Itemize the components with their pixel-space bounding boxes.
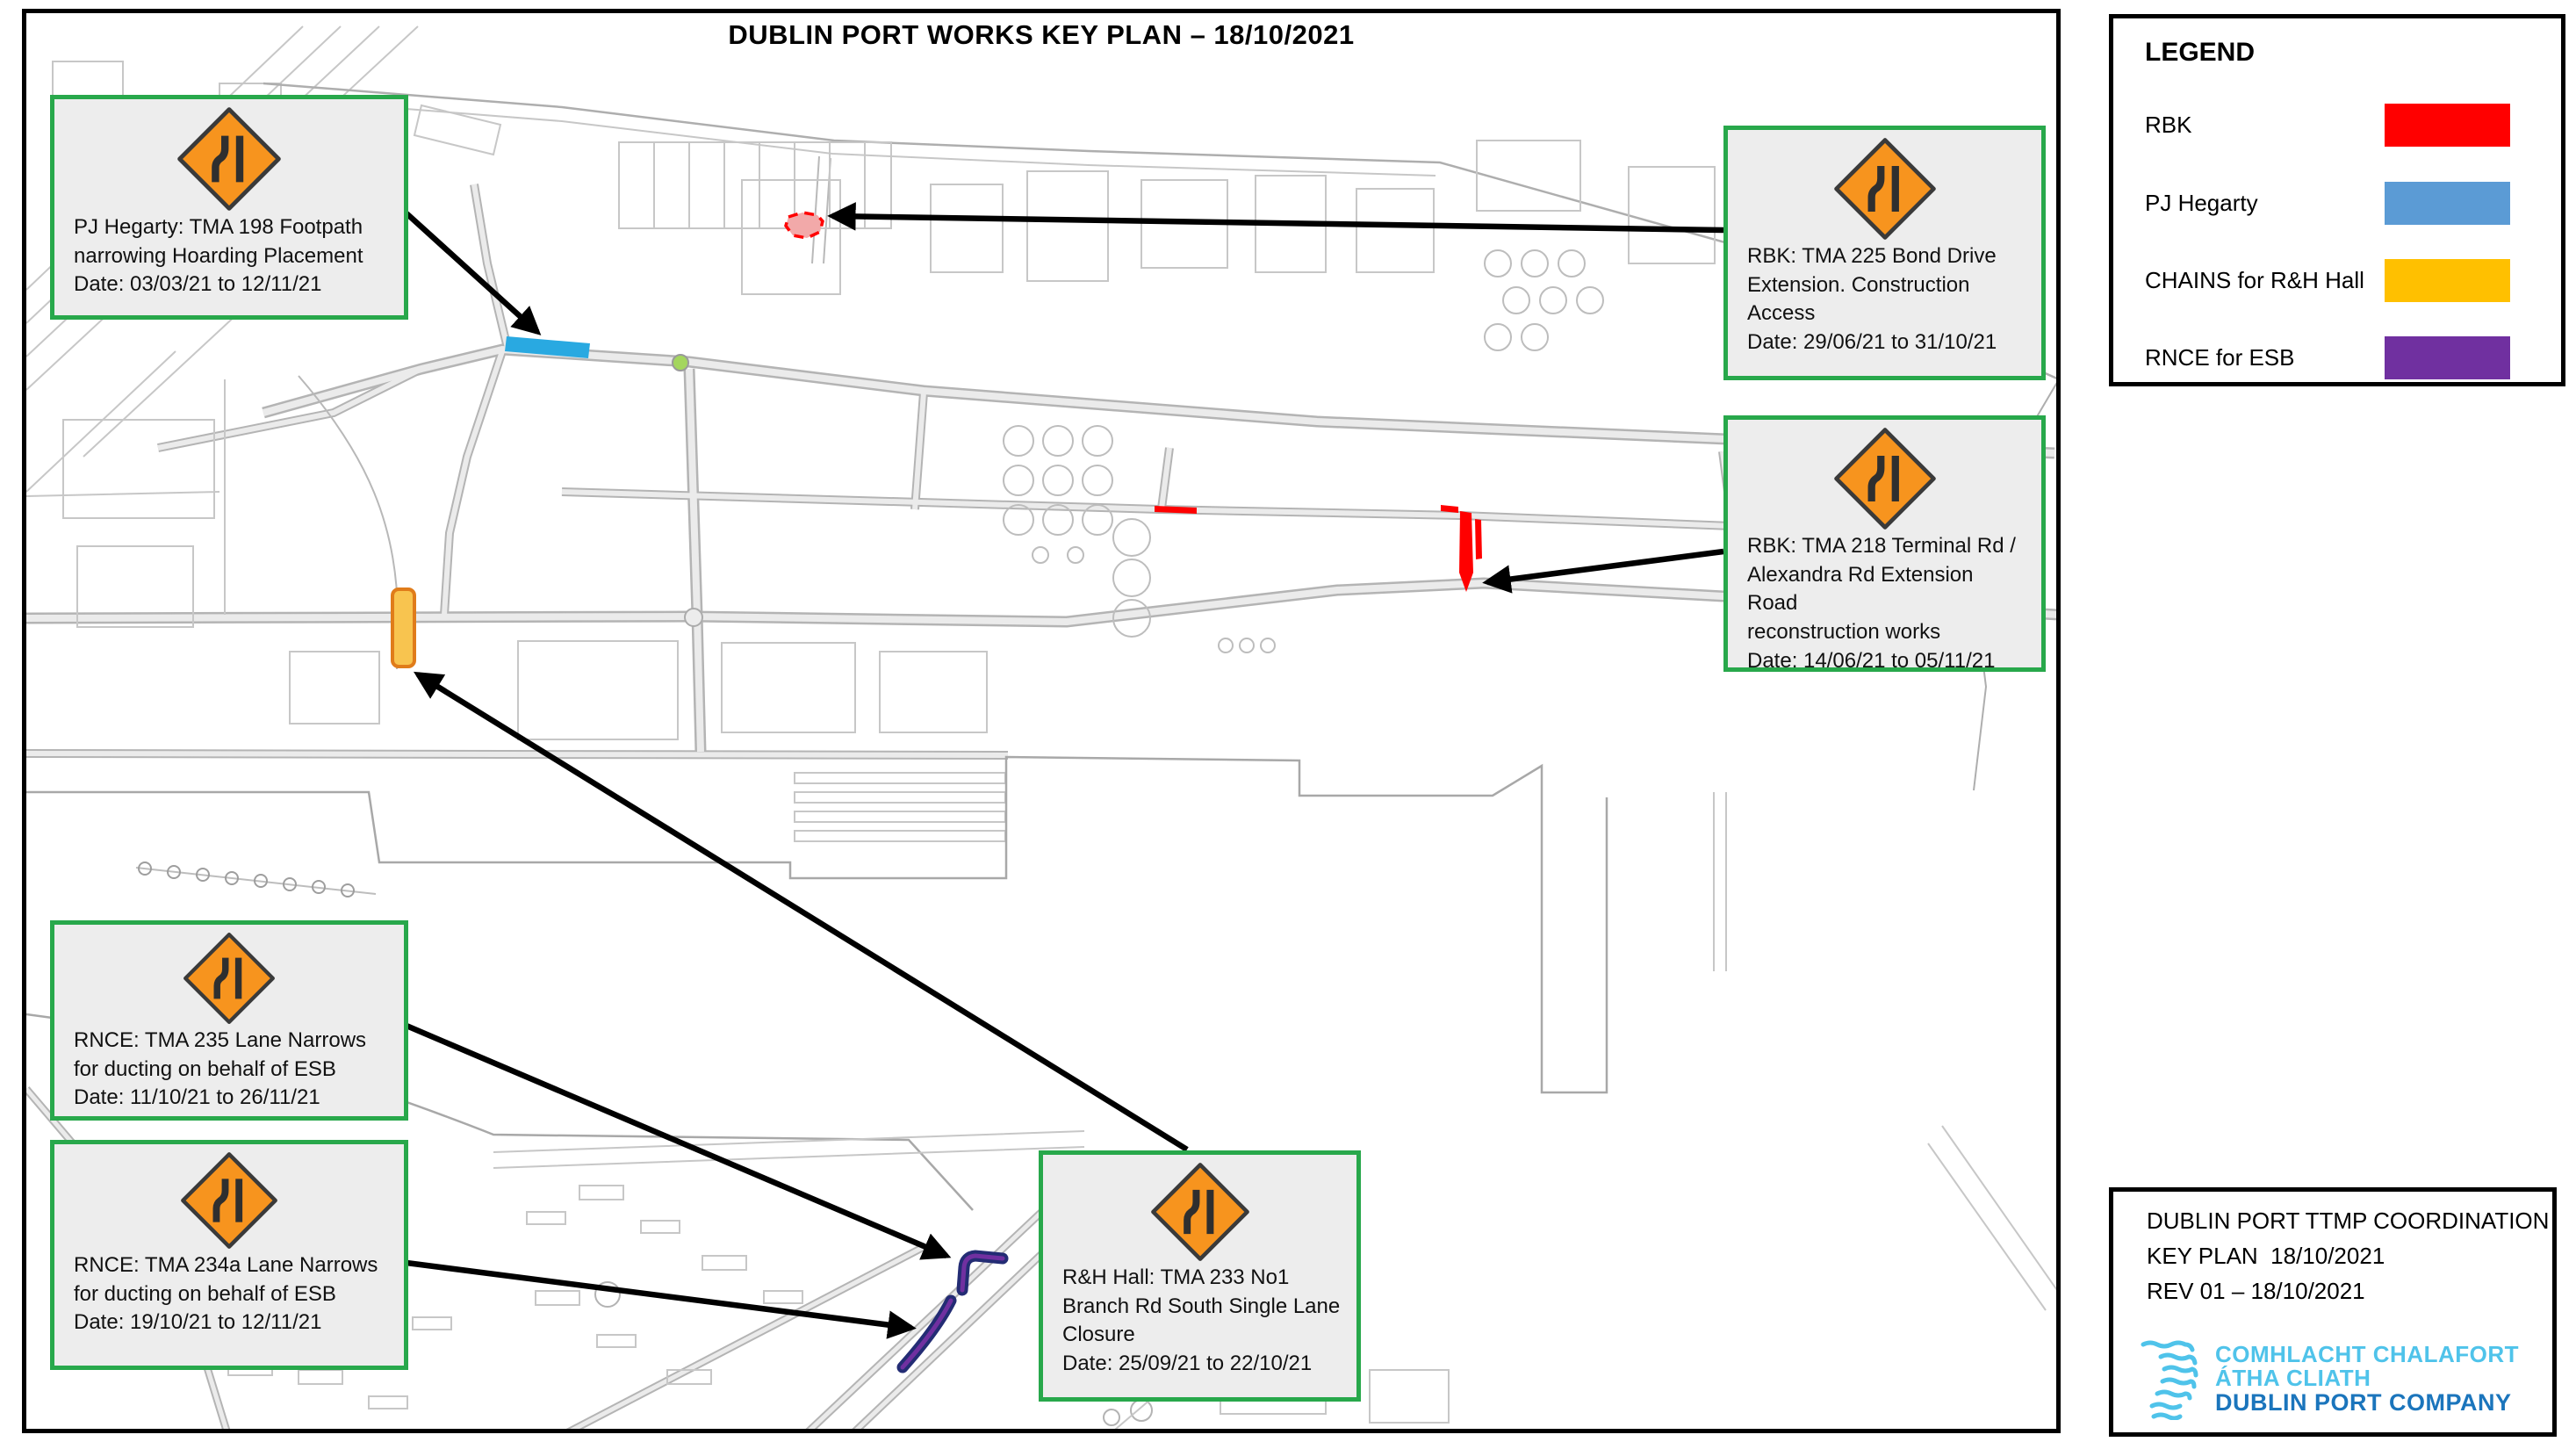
road-narrows-sign-icon [1833, 427, 1937, 530]
legend-row-rnce: RNCE for ESB [2145, 336, 2538, 379]
arrow-pj-hegarty-198 [407, 213, 537, 332]
callout-rbk-225: RBK: TMA 225 Bond Drive Extension. Const… [1723, 126, 2046, 380]
rbk-218-work-zone-marker-secondary [1475, 519, 1482, 559]
legend-swatch-chains [2385, 259, 2510, 302]
legend-heading: LEGEND [2145, 38, 2255, 68]
legend-label: CHAINS for R&H Hall [2145, 267, 2364, 294]
road-narrows-sign-icon [180, 1151, 278, 1250]
arrow-rbk-218 [1487, 551, 1723, 582]
road-narrows-sign-icon [183, 932, 276, 1025]
callout-line: Date: 14/06/21 to 05/11/21 [1747, 647, 2029, 676]
callout-text: R&H Hall: TMA 233 No1 Branch Rd South Si… [1043, 1262, 1356, 1388]
legend: LEGEND RBK PJ Hegarty CHAINS for R&H Hal… [2109, 14, 2565, 386]
legend-label: RNCE for ESB [2145, 344, 2295, 371]
rbk-225-work-zone-marker [786, 213, 823, 238]
callout-line: RBK: TMA 218 Terminal Rd / [1747, 532, 2029, 561]
callout-line: Extension. Construction [1747, 271, 2029, 300]
callout-rh-hall-233: R&H Hall: TMA 233 No1 Branch Rd South Si… [1039, 1150, 1361, 1402]
legend-swatch-pj-hegarty [2385, 182, 2510, 225]
roundabout-marker [673, 355, 688, 371]
page-title: DUBLIN PORT WORKS KEY PLAN – 18/10/2021 [22, 19, 2061, 51]
callout-text: RNCE: TMA 234a Lane Narrows for ducting … [54, 1250, 404, 1346]
callout-line: Access [1747, 299, 2029, 328]
callout-line: PJ Hegarty: TMA 198 Footpath [74, 213, 392, 242]
callout-line: Date: 03/03/21 to 12/11/21 [74, 270, 392, 299]
callout-rnce-235: RNCE: TMA 235 Lane Narrows for ducting o… [50, 920, 408, 1121]
callout-line: for ducting on behalf of ESB [74, 1280, 392, 1309]
callout-line: RNCE: TMA 234a Lane Narrows [74, 1251, 392, 1280]
callout-text: RNCE: TMA 235 Lane Narrows for ducting o… [54, 1025, 404, 1121]
callout-line: RBK: TMA 225 Bond Drive [1747, 242, 2029, 271]
callout-line: Closure [1062, 1321, 1344, 1350]
title-block-line-1: DUBLIN PORT TTMP COORDINATION [2147, 1207, 2549, 1235]
legend-row-chains: CHAINS for R&H Hall [2145, 259, 2538, 302]
callout-line: Date: 11/10/21 to 26/11/21 [74, 1084, 392, 1113]
callout-rnce-234a: RNCE: TMA 234a Lane Narrows for ducting … [50, 1140, 408, 1370]
callout-text: PJ Hegarty: TMA 198 Footpath narrowing H… [54, 212, 404, 308]
callout-line: RNCE: TMA 235 Lane Narrows [74, 1027, 392, 1056]
callout-line: for ducting on behalf of ESB [74, 1056, 392, 1085]
dpc-irish-name-line-1: COMHLACHT CHALAFORT [2215, 1343, 2519, 1366]
dublin-port-key-plan-page: DUBLIN PORT WORKS KEY PLAN – 18/10/2021 … [0, 0, 2576, 1449]
legend-label: RBK [2145, 112, 2191, 139]
legend-row-pj-hegarty: PJ Hegarty [2145, 182, 2538, 225]
legend-label: PJ Hegarty [2145, 190, 2258, 217]
callout-line: Date: 25/09/21 to 22/10/21 [1062, 1350, 1344, 1379]
arrow-rbk-225 [832, 216, 1723, 230]
legend-row-rbk: RBK [2145, 104, 2538, 147]
legend-swatch-rnce [2385, 336, 2510, 379]
callout-text: RBK: TMA 225 Bond Drive Extension. Const… [1728, 241, 2041, 366]
callout-line: Date: 29/06/21 to 31/10/21 [1747, 328, 2029, 357]
road-narrows-sign-icon [1833, 137, 1937, 241]
dpc-irish-name-line-2: ÁTHA CLIATH [2215, 1366, 2519, 1390]
title-block-line-2: KEY PLAN 18/10/2021 [2147, 1243, 2385, 1270]
callout-line: Branch Rd South Single Lane [1062, 1293, 1344, 1322]
callout-line: narrowing Hoarding Placement [74, 242, 392, 271]
callout-pj-hegarty-198: PJ Hegarty: TMA 198 Footpath narrowing H… [50, 95, 408, 320]
callout-line: R&H Hall: TMA 233 No1 [1062, 1264, 1344, 1293]
callout-line: Alexandra Rd Extension Road [1747, 561, 2029, 618]
callout-rbk-218: RBK: TMA 218 Terminal Rd / Alexandra Rd … [1723, 415, 2046, 672]
callout-line: Date: 19/10/21 to 12/11/21 [74, 1308, 392, 1337]
legend-swatch-rbk [2385, 104, 2510, 147]
road-narrows-sign-icon [176, 106, 282, 212]
title-block-line-3: REV 01 – 18/10/2021 [2147, 1278, 2365, 1305]
dpc-english-name: DUBLIN PORT COMPANY [2215, 1390, 2519, 1415]
title-block: DUBLIN PORT TTMP COORDINATION KEY PLAN 1… [2109, 1187, 2557, 1437]
dublin-port-company-logo: COMHLACHT CHALAFORT ÁTHA CLIATH DUBLIN P… [2140, 1337, 2526, 1425]
callout-line: reconstruction works [1747, 618, 2029, 647]
dpc-logo-text: COMHLACHT CHALAFORT ÁTHA CLIATH DUBLIN P… [2215, 1343, 2519, 1415]
rh-hall-work-zone-marker [392, 589, 414, 667]
callout-text: RBK: TMA 218 Terminal Rd / Alexandra Rd … [1728, 530, 2041, 684]
road-narrows-sign-icon [1150, 1162, 1250, 1262]
dpc-waves-icon [2140, 1339, 2210, 1420]
